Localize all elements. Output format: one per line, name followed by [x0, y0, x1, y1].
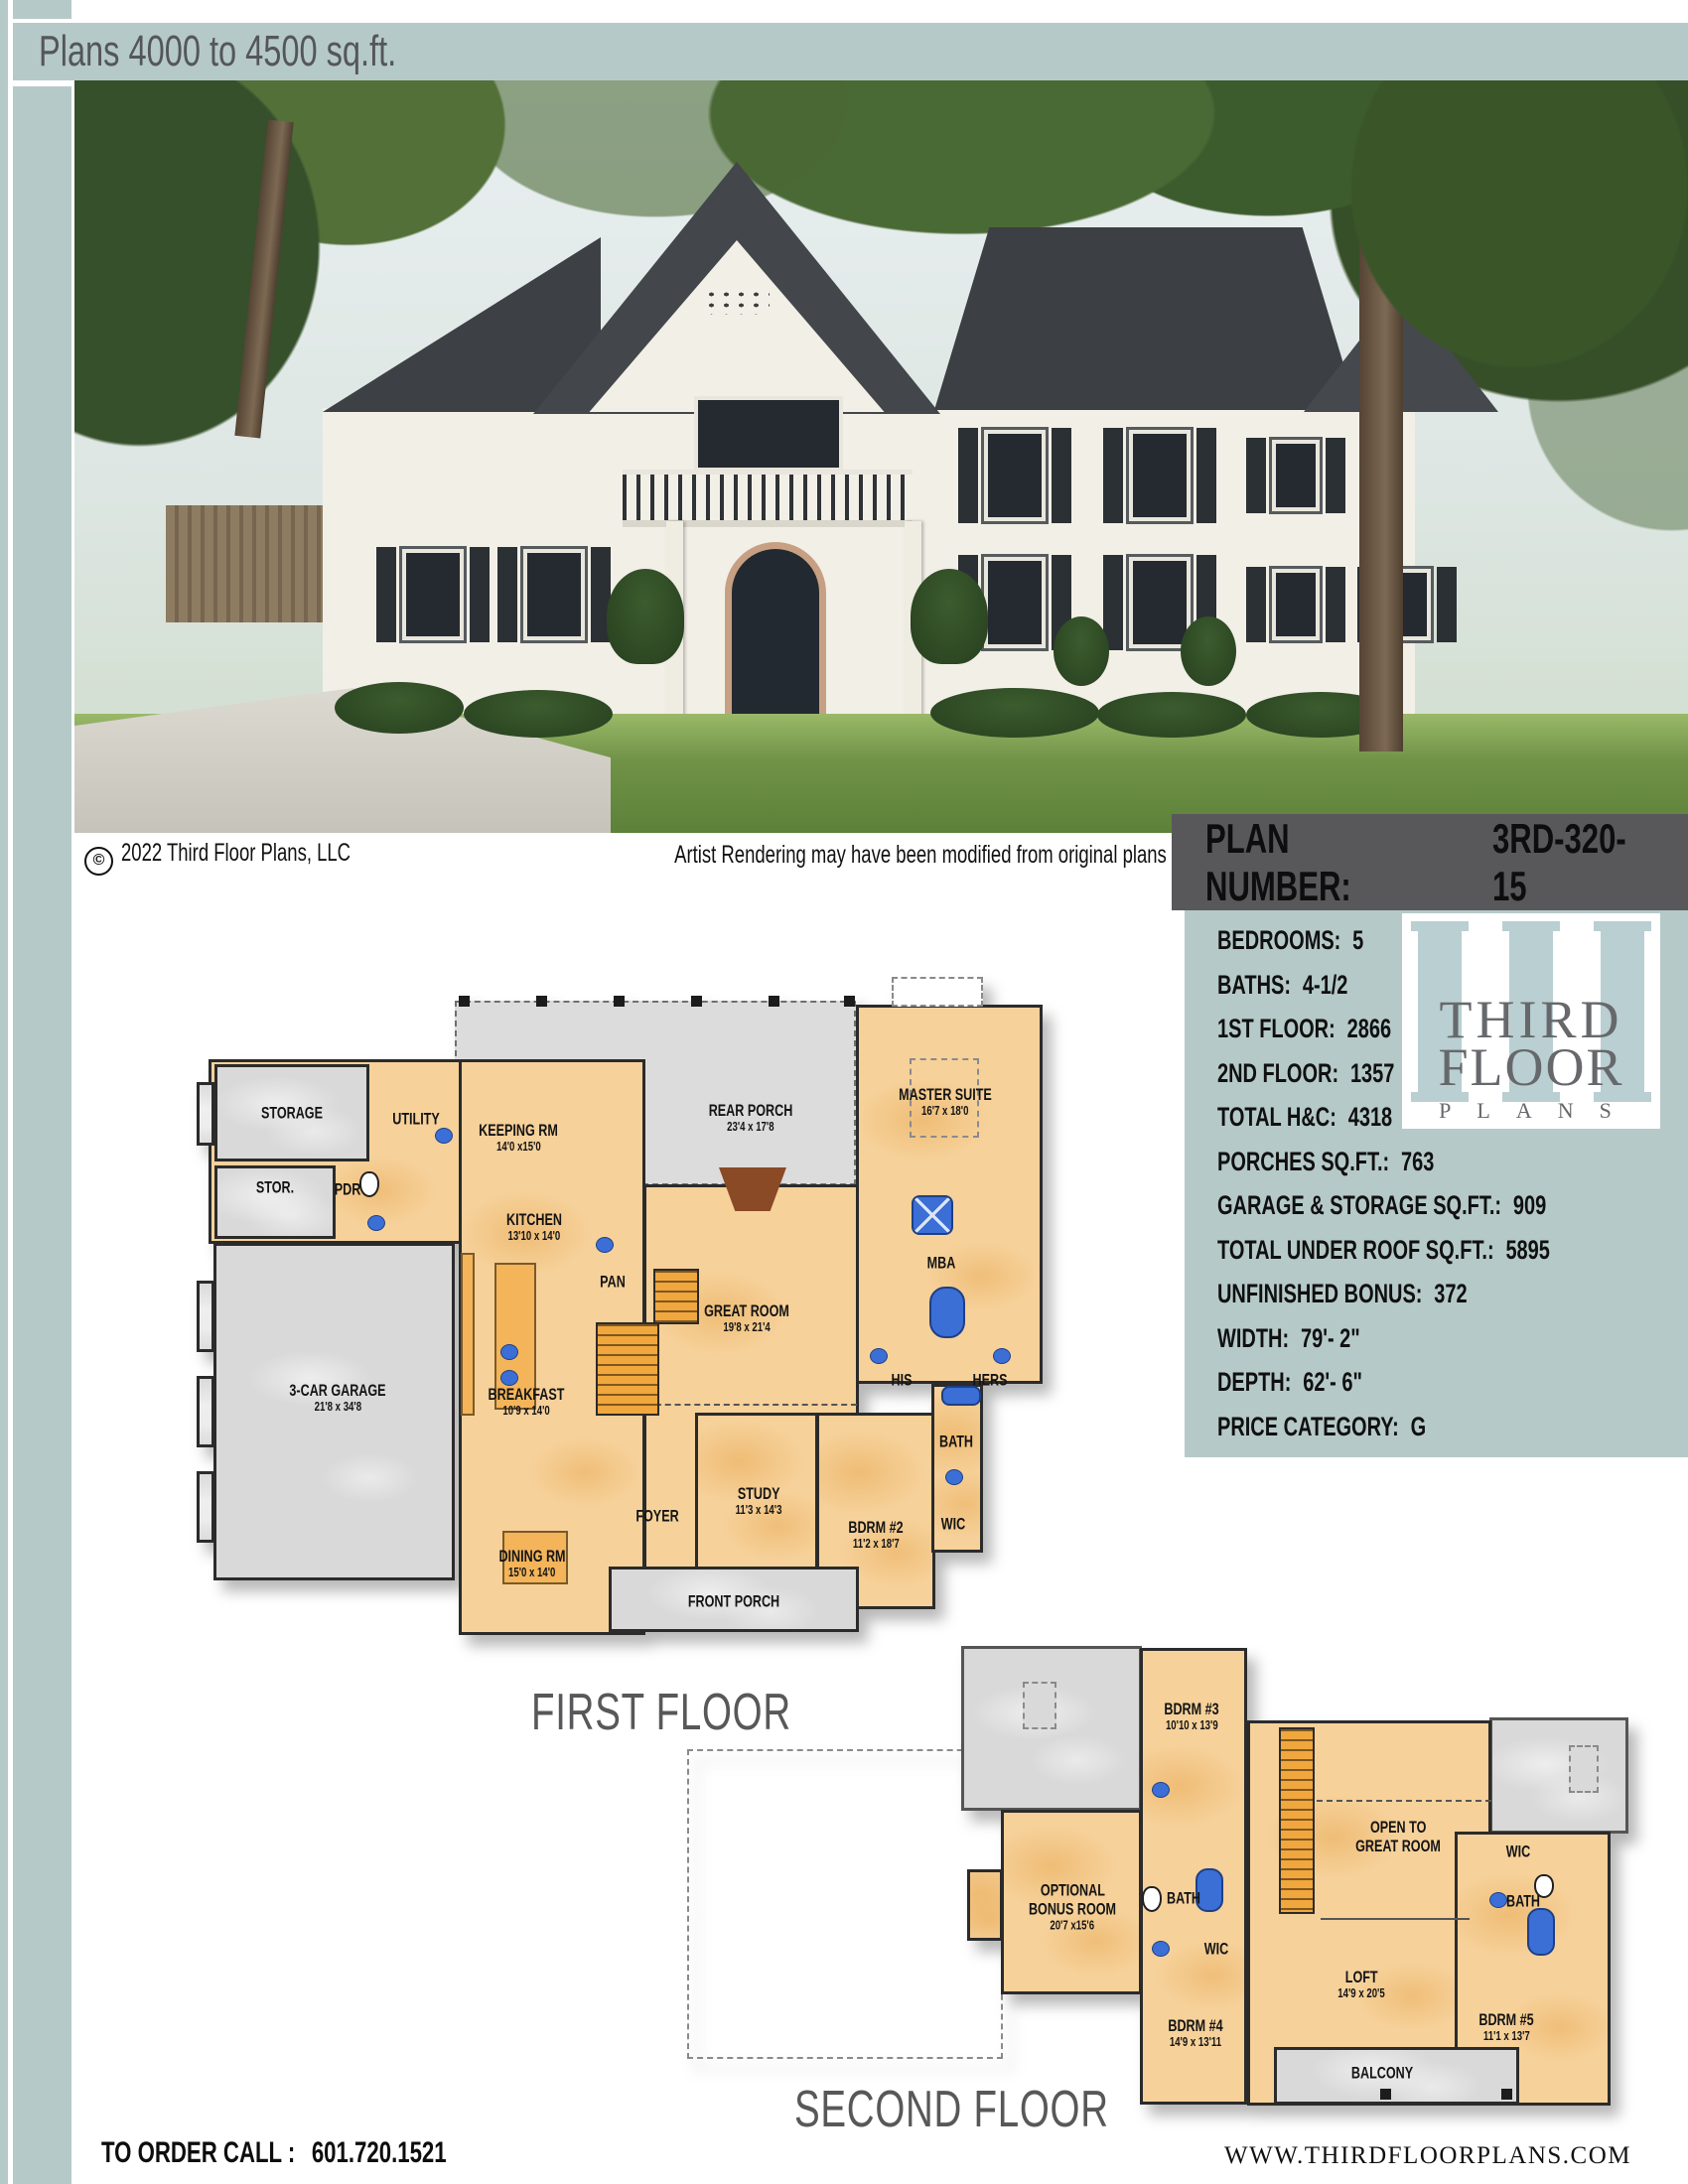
- room-label-bdrm3: BDRM #310'10 x 13'9: [1155, 1700, 1229, 1733]
- roof-overhang-outline: [687, 1749, 1003, 2059]
- chimney-outline-right: [1569, 1745, 1599, 1793]
- stairs-second-floor: [1279, 1727, 1315, 1914]
- flyer-page: Plans 4000 to 4500 sq.ft.: [0, 0, 1688, 2184]
- bonus-room-bump: [967, 1869, 1003, 1941]
- order-phone: 601.720.1521: [312, 2136, 447, 2169]
- balcony-post: [1501, 2089, 1512, 2100]
- room-label-wic-right: WIC: [1501, 1842, 1534, 1860]
- order-phone-line: TO ORDER CALL : 601.720.1521: [101, 2136, 568, 2170]
- balcony-post: [1380, 2089, 1391, 2100]
- second-floor-plan: BDRM #310'10 x 13'9 OPTIONALBONUS ROOM20…: [0, 0, 1688, 2184]
- open-area-dash: [1317, 1800, 1491, 1802]
- sink: [1152, 1941, 1170, 1957]
- room-label-bonus: OPTIONALBONUS ROOM20'7 x15'6: [1014, 1881, 1132, 1934]
- order-label: TO ORDER CALL :: [101, 2136, 295, 2169]
- room-label-balcony: BALCONY: [1340, 2063, 1424, 2082]
- room-label-bath-right: BATH: [1500, 1891, 1546, 1910]
- loft-rail-dash: [1321, 1918, 1470, 1920]
- sink: [1152, 1782, 1170, 1798]
- roof-area-right: [1489, 1717, 1628, 1834]
- room-label-wic-left: WIC: [1199, 1939, 1232, 1958]
- room-label-bdrm4: BDRM #414'9 x 13'11: [1159, 2016, 1233, 2050]
- room-label-open-to-great-room: OPEN TOGREAT ROOM: [1340, 1818, 1456, 1855]
- website-url: WWW.THIRDFLOORPLANS.COM: [1224, 2142, 1631, 2170]
- room-label-loft: LOFT14'9 x 20'5: [1330, 1968, 1393, 2001]
- bath-toilet-left: [1142, 1886, 1162, 1912]
- second-floor-title: SECOND FLOOR: [794, 2080, 1219, 2139]
- room-label-bdrm5: BDRM #511'1 x 13'7: [1470, 2010, 1544, 2044]
- bath-tub-right: [1527, 1908, 1555, 1956]
- room-label-bath-left: BATH: [1161, 1888, 1206, 1907]
- chimney-outline-left: [1023, 1682, 1056, 1729]
